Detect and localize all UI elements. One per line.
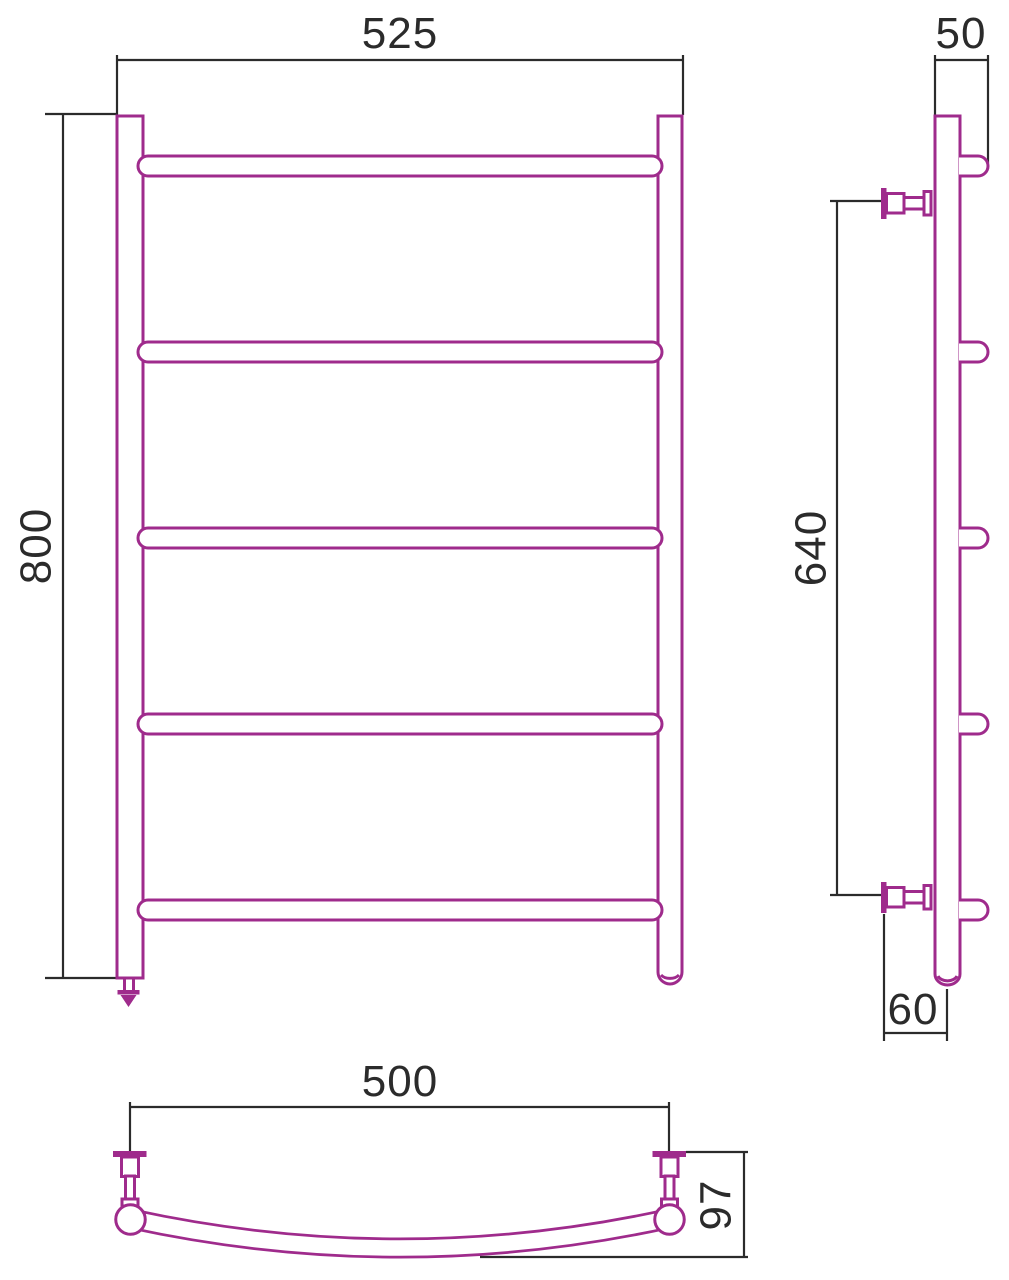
post-section	[116, 1205, 146, 1235]
top-right-mount	[653, 1151, 687, 1234]
bracket-collar	[924, 192, 931, 216]
side-bracket-span-dimension: 640	[787, 201, 882, 895]
dimension-label-depth: 97	[692, 1180, 741, 1231]
bracket-base	[887, 888, 905, 908]
dimension-label-depth: 50	[936, 9, 987, 58]
bracket-base	[122, 1157, 139, 1177]
dimension-label-height: 800	[12, 508, 61, 584]
bracket-base	[887, 194, 905, 214]
bar-stub	[959, 900, 988, 920]
right-post	[658, 116, 682, 984]
towel-rail-technical-drawing: 525 800	[0, 0, 1009, 1280]
drawing-canvas: 525 800	[0, 0, 1009, 1280]
side-post	[935, 116, 960, 985]
dimension-label-width: 525	[362, 9, 438, 58]
towel-bar	[138, 156, 662, 176]
wall-bracket-top	[881, 188, 931, 219]
top-left-mount	[113, 1151, 147, 1234]
bracket-rod	[665, 1176, 674, 1200]
towel-bar	[138, 528, 662, 548]
valve-crossbar	[118, 990, 140, 995]
towel-bar	[138, 342, 662, 362]
towel-bar	[138, 900, 662, 920]
wall-bracket-bottom	[881, 882, 931, 913]
bracket-rod	[904, 198, 924, 210]
front-height-dimension: 800	[12, 114, 118, 978]
bracket-rod	[904, 892, 924, 904]
valve-arrow-icon	[121, 995, 137, 1007]
left-post	[117, 116, 143, 978]
front-width-dimension: 525	[117, 9, 683, 115]
dimension-label-bracket-width: 500	[362, 1057, 438, 1106]
towel-bar	[138, 714, 662, 734]
side-view: 50 640	[787, 9, 989, 1041]
bar-stub	[959, 528, 988, 548]
bar-stub	[959, 714, 988, 734]
curved-bar-top	[132, 1219, 667, 1248]
dimension-label-wall-offset: 60	[888, 985, 939, 1034]
bracket-rod	[126, 1176, 135, 1200]
dimension-label-bracket-span: 640	[787, 510, 836, 586]
front-view: 525 800	[12, 9, 684, 1007]
top-width-dimension: 500	[130, 1057, 669, 1151]
bracket-collar	[924, 886, 931, 910]
bar-stub	[959, 156, 988, 176]
post-section	[655, 1205, 685, 1235]
bracket-base	[661, 1157, 678, 1177]
bar-stub	[959, 342, 988, 362]
drain-valve	[118, 978, 140, 1007]
top-view: 500 97	[113, 1057, 748, 1257]
